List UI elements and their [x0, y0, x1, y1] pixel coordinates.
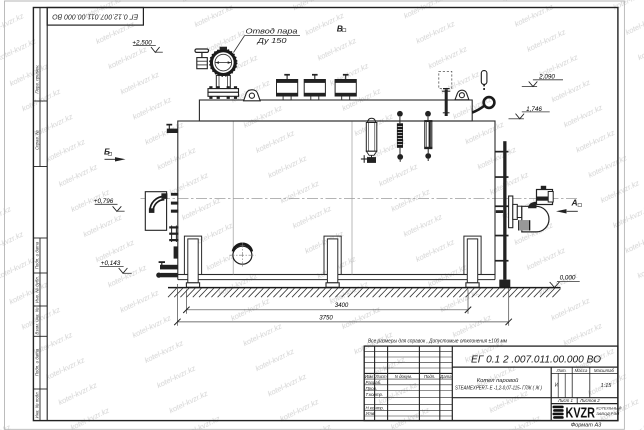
- svg-text:Н.контр.: Н.контр.: [366, 406, 385, 411]
- svg-text:2,090: 2,090: [538, 73, 555, 80]
- svg-text:И: И: [555, 383, 559, 389]
- svg-text:Инв. № подл.: Инв. № подл.: [34, 391, 39, 418]
- svg-text:Подп. и дата: Подп. и дата: [34, 348, 39, 376]
- svg-text:Лист: Лист: [375, 374, 387, 379]
- svg-text:Взам. инв. №: Взам. инв. №: [34, 307, 39, 334]
- svg-text:В: В: [337, 23, 343, 33]
- svg-text:3750: 3750: [319, 314, 333, 321]
- svg-text:Котел паровой: Котел паровой: [477, 377, 519, 384]
- svg-text:Ду 150: Ду 150: [256, 36, 287, 45]
- svg-text:Формат А3: Формат А3: [571, 423, 602, 429]
- svg-text:Лит.: Лит.: [556, 368, 567, 373]
- svg-text:Дата: Дата: [439, 374, 452, 379]
- svg-text:КОТЕЛЬНЫЙ: КОТЕЛЬНЫЙ: [596, 406, 621, 411]
- svg-text:Инв. № дубл.: Инв. № дубл.: [34, 276, 39, 303]
- svg-text:Подп. и дата: Подп. и дата: [34, 241, 39, 269]
- svg-text:Подп.: Подп.: [424, 374, 435, 379]
- svg-text:Утв.: Утв.: [366, 411, 376, 416]
- svg-text:Лист 1: Лист 1: [557, 398, 574, 403]
- svg-text:Масса: Масса: [575, 368, 588, 373]
- svg-text:KVZR: KVZR: [566, 406, 596, 422]
- svg-text:0,000: 0,000: [560, 274, 576, 281]
- svg-text:Масштаб: Масштаб: [594, 368, 615, 373]
- svg-text:Листов 2: Листов 2: [579, 398, 600, 403]
- svg-text:Т.контр.: Т.контр.: [366, 392, 384, 397]
- svg-text:Перв. примен.: Перв. примен.: [34, 64, 39, 93]
- svg-text:ЗАВОД РЭП: ЗАВОД РЭП: [596, 411, 619, 416]
- svg-text:1:15: 1:15: [601, 383, 613, 389]
- svg-text:+0,143: +0,143: [101, 260, 121, 267]
- svg-text:Пров.: Пров.: [366, 386, 378, 391]
- svg-text:А: А: [571, 197, 578, 207]
- svg-text:Изм.: Изм.: [365, 374, 374, 379]
- svg-text:Все размеры для справок , Допу: Все размеры для справок , Допустимые отк…: [368, 338, 507, 344]
- svg-text:3400: 3400: [335, 302, 349, 309]
- svg-text:STEAMEXPERT- Е -1,2-0,07-115-: STEAMEXPERT- Е -1,2-0,07-115- ГЛЖ ( Ж ): [455, 386, 542, 392]
- svg-text:Отвод пара: Отвод пара: [246, 27, 298, 36]
- svg-text:N докум.: N докум.: [395, 374, 412, 379]
- svg-text:ЕГ 0.1 2 .007.011.00.000 ВО: ЕГ 0.1 2 .007.011.00.000 ВО: [471, 354, 601, 366]
- svg-text:Справ. №: Справ. №: [34, 130, 39, 150]
- svg-text:Разраб.: Разраб.: [366, 380, 382, 385]
- svg-text:ЕГ 0.12.007.011.00.000 ВО: ЕГ 0.12.007.011.00.000 ВО: [52, 12, 138, 21]
